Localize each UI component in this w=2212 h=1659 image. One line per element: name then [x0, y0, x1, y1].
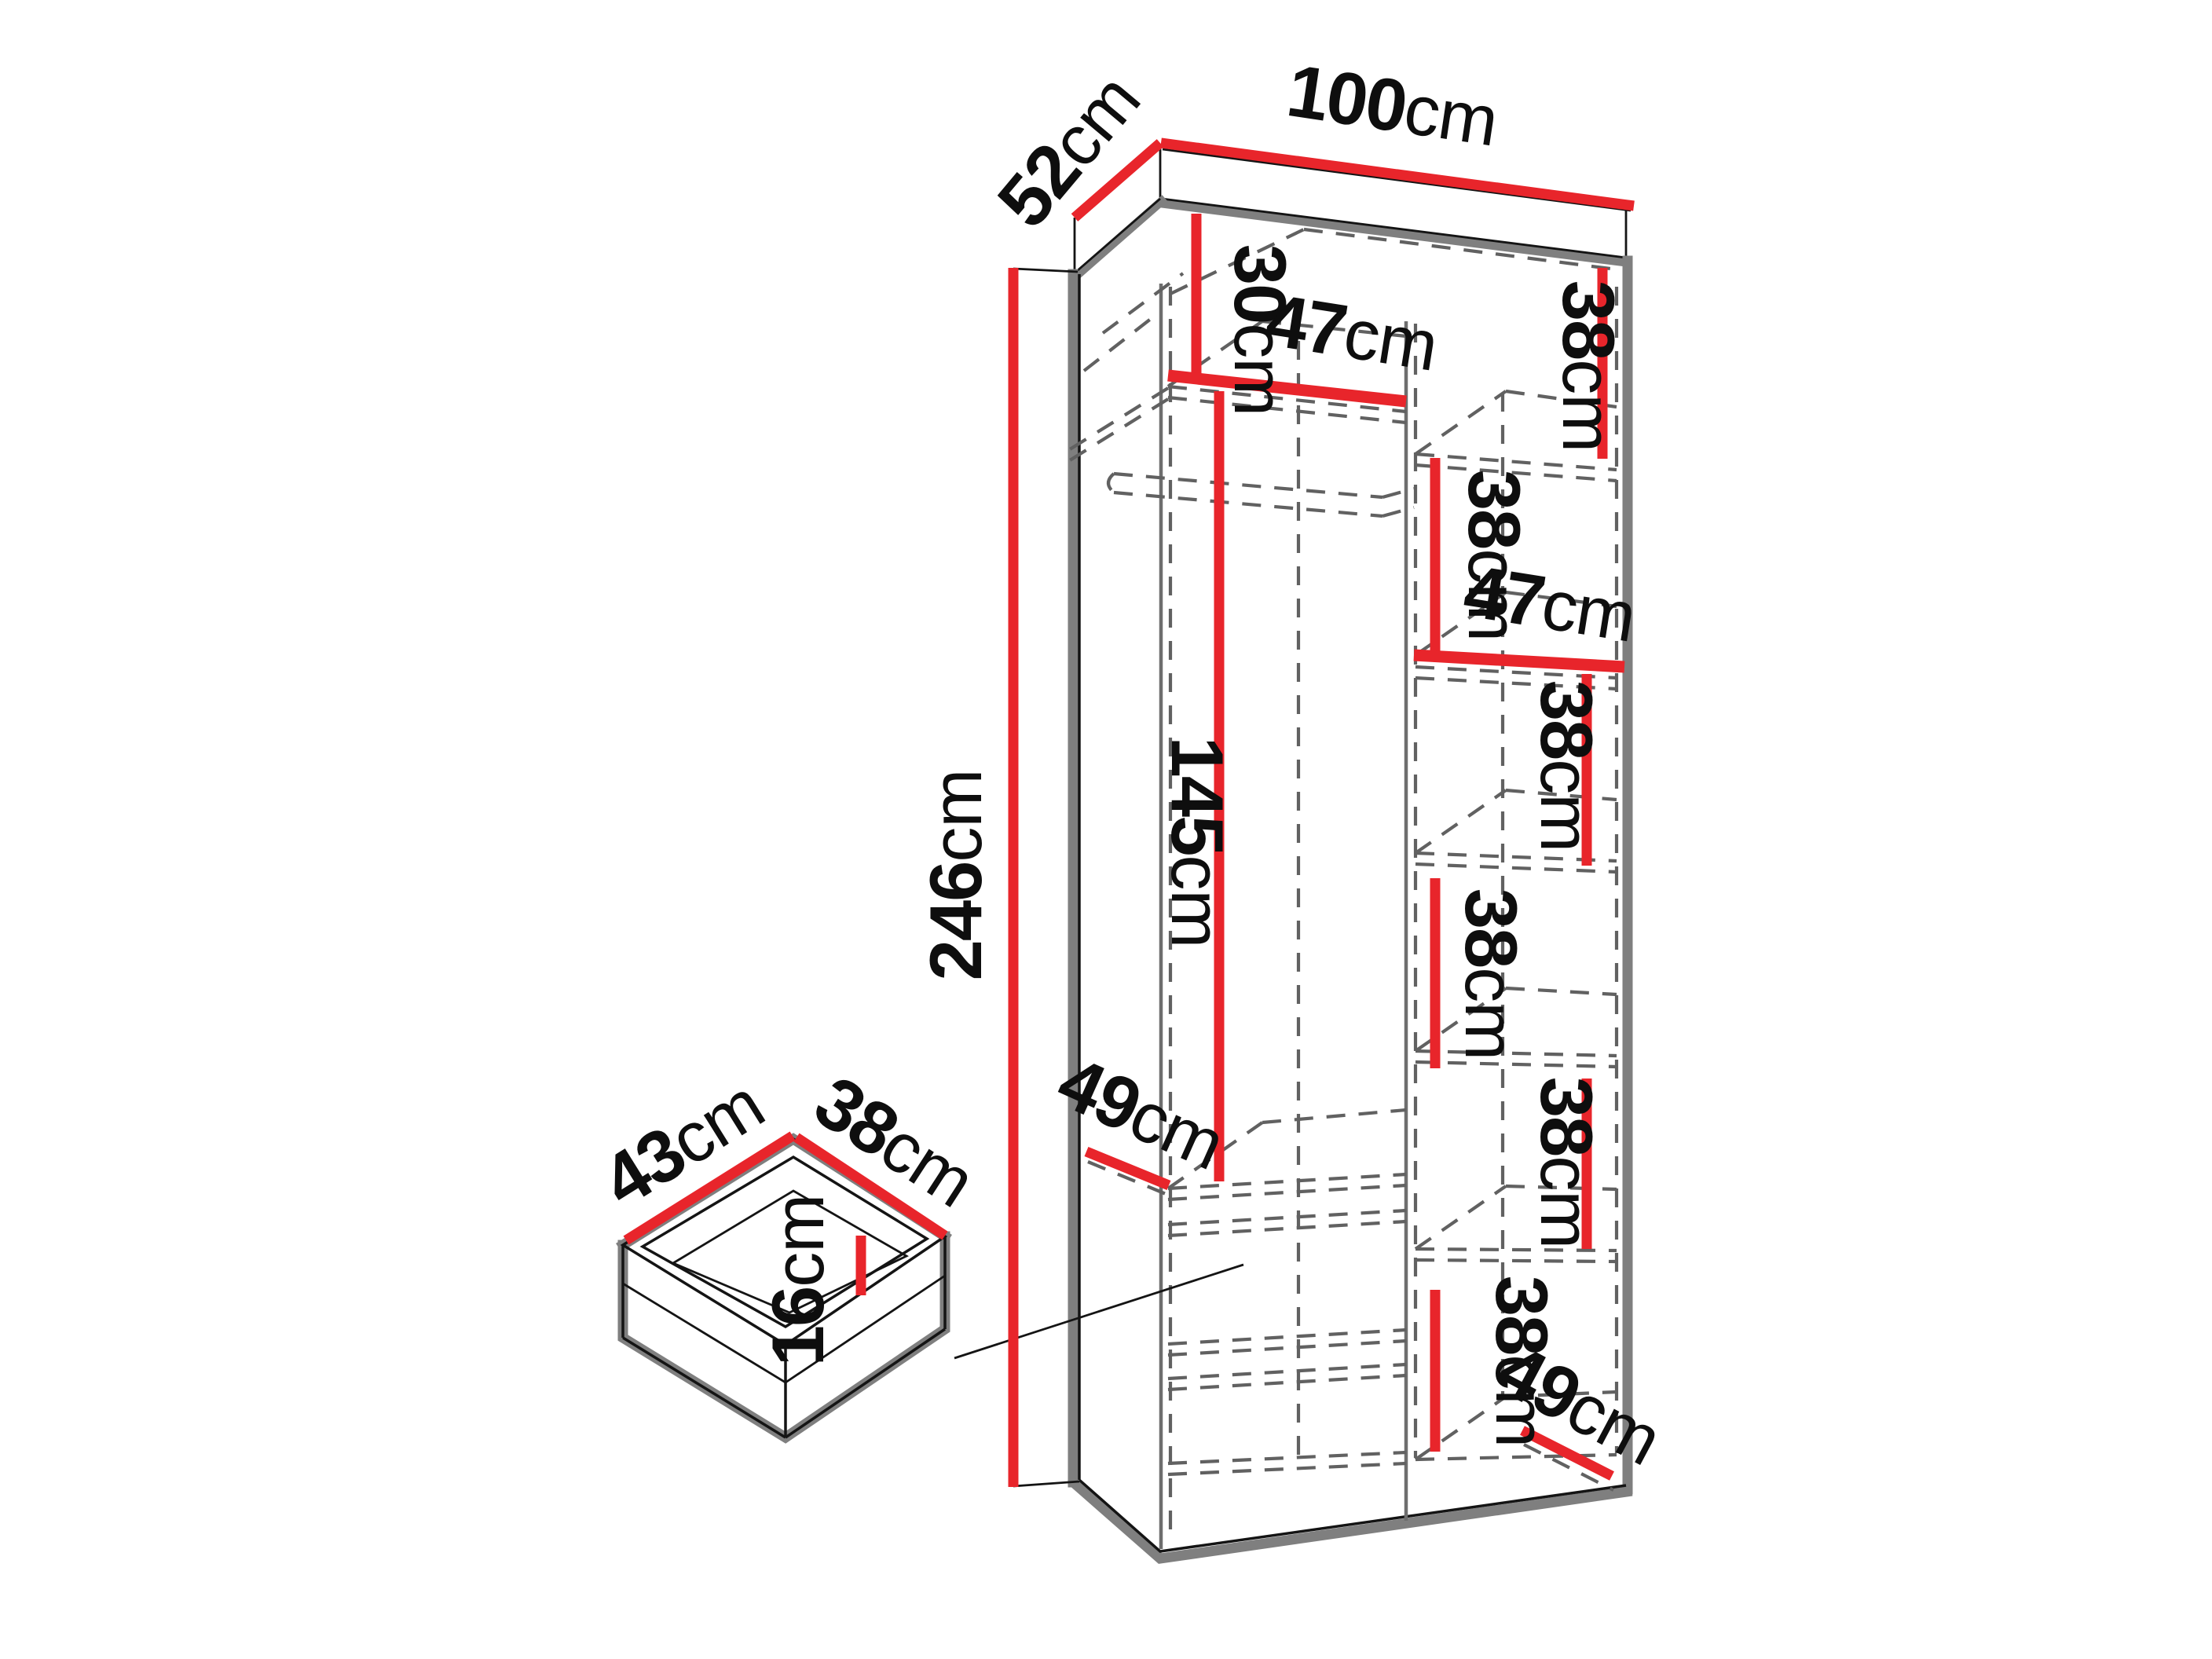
- label-drawer-width-43: 43cm: [588, 1062, 777, 1223]
- left-lowshelf-back: [1262, 1110, 1406, 1122]
- top-panel: [1075, 144, 1631, 273]
- label-depth-52: 52cm: [982, 58, 1155, 243]
- left-bay-fittings: [1070, 321, 1414, 1474]
- hanging-rod-top: [1114, 474, 1382, 497]
- hanging-rod-cap: [1108, 474, 1114, 493]
- left-top-depth-diag-2: [1084, 316, 1155, 371]
- shelf1-depth-diag: [1415, 391, 1506, 454]
- hanging-rod-bracket-1: [1382, 489, 1414, 497]
- label-gap3-38: 38cm: [1525, 680, 1608, 852]
- hanging-rod-bottom: [1114, 493, 1382, 516]
- label-drawer-height-16: 16cm: [756, 1195, 839, 1367]
- left-panel-top-shadow: [1080, 201, 1162, 273]
- shelf5-thickness: [1415, 1260, 1617, 1262]
- label-width-100: 100cm: [1282, 49, 1503, 162]
- label-gap1-38: 38cm: [1547, 280, 1630, 452]
- drawer-pointer-line: [954, 1265, 1243, 1358]
- hanging-rod-bracket-2: [1382, 507, 1414, 516]
- dim-line-width-100: [1161, 143, 1634, 206]
- shelf3-depth-diag: [1415, 790, 1506, 853]
- dim-line-right-bay-47: [1414, 655, 1624, 667]
- bottom-panel-front: [1168, 1452, 1406, 1463]
- left-shelf-proj-1: [1070, 388, 1168, 449]
- label-gap5-38: 38cm: [1525, 1077, 1608, 1249]
- shelf4-thickness: [1415, 1062, 1617, 1067]
- diagram-canvas: 52cm 100cm 246cm 30cm 47cm 145cm 38cm 38…: [0, 0, 2212, 1659]
- dimension-labels: 52cm 100cm 246cm 30cm 47cm 145cm 38cm 38…: [588, 49, 1675, 1481]
- label-hanging-145: 145cm: [1156, 737, 1239, 948]
- shelf1-front: [1415, 454, 1617, 470]
- top-panel-back-edge: [1163, 149, 1631, 211]
- shelf5-front: [1415, 1249, 1617, 1251]
- wardrobe-dimension-diagram: 52cm 100cm 246cm 30cm 47cm 145cm 38cm 38…: [0, 0, 2212, 1659]
- label-height-246: 246cm: [914, 770, 997, 981]
- bottom-panel-thickness: [1168, 1463, 1406, 1474]
- left-shelf-proj-2: [1070, 399, 1168, 460]
- label-gap4-38: 38cm: [1450, 888, 1533, 1060]
- shelf5-depth-diag: [1415, 1186, 1506, 1249]
